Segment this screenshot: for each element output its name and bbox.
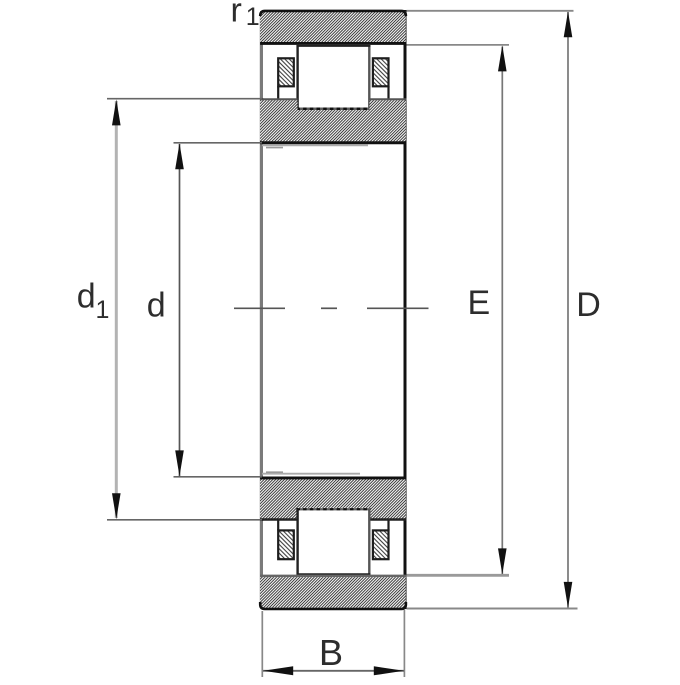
svg-text:D: D	[576, 286, 601, 324]
svg-text:E: E	[468, 284, 491, 322]
svg-text:1: 1	[96, 296, 110, 324]
svg-text:1: 1	[246, 3, 260, 31]
svg-text:d: d	[77, 278, 96, 316]
svg-text:B: B	[319, 632, 343, 673]
svg-text:d: d	[147, 286, 166, 324]
svg-text:r: r	[231, 0, 242, 29]
